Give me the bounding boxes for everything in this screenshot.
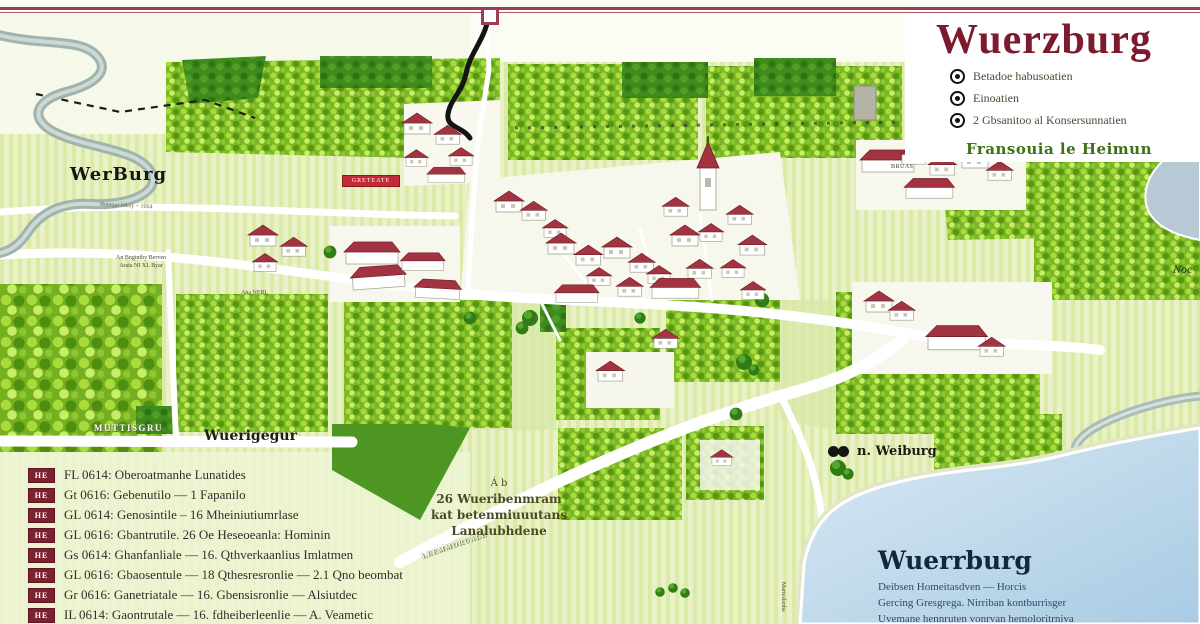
- legend-row: HE IL 0614: Gaontrutale — 16. fdheiberle…: [28, 605, 403, 624]
- legend-row-text: GL 0616: Gbaosentule — 18 Qthesresronlie…: [64, 567, 403, 583]
- road-label-1: Ana NERL: [241, 290, 268, 296]
- legend-row-text: IL 0614: Gaontrutale — 16. fdheiberleenl…: [64, 607, 373, 623]
- target-bullet-icon: [950, 113, 965, 128]
- legend-row-text: Gs 0614: Ghanfanliale — 16. Qthverkaanli…: [64, 547, 353, 563]
- legend-badge: HE: [28, 608, 55, 623]
- center-annotation-line4: Lanalubhdene: [404, 523, 594, 539]
- target-bullet-icon: [950, 69, 965, 84]
- gray-building: [854, 86, 876, 120]
- field-note: An Bngtnthy Berven Arata NI XL Byar: [116, 255, 166, 271]
- legend-key-item: Einoatien: [950, 91, 1192, 106]
- legend-row-text: GL 0616: Gbantrutile. 26 Oe Heseoeanla: …: [64, 527, 330, 543]
- center-annotation-line2: 26 Wueribenmram: [404, 491, 594, 507]
- legend-badge: HE: [28, 568, 55, 583]
- binoculars-icon: [828, 446, 850, 458]
- field-note-line2: Arata NI XL Byar: [116, 263, 166, 271]
- poi-weiburg: n. Weiburg: [828, 444, 937, 459]
- legend-badge: HE: [28, 528, 55, 543]
- legend-row-text: Gt 0616: Gebenutilo — 1 Fapanilo: [64, 487, 246, 503]
- lake-line1: Deibsen Homeitasdven — Horcis: [878, 580, 1074, 596]
- center-annotation-line1: Á b: [404, 477, 594, 491]
- legend-key-item: Betadoe habusoatien: [950, 69, 1192, 84]
- top-border-line: [0, 7, 1200, 10]
- top-border-line-thin: [0, 12, 1200, 13]
- center-annotation-line3: kat betenmiuuutans: [404, 507, 594, 523]
- edge-label: Noc: [1173, 262, 1192, 277]
- legend-row: HE FL 0614: Oberoatmanhe Lunatides: [28, 465, 403, 485]
- legend-key-label: Betadoe habusoatien: [973, 69, 1073, 84]
- center-annotation: Á b 26 Wueribenmram kat betenmiuuutans L…: [404, 477, 594, 539]
- title-block: Wuerzburg Betadoe habusoatien Einoatien …: [936, 18, 1192, 158]
- vertical-map-label: Marteslenba: [780, 582, 786, 612]
- red-banner-label: GRETEATE: [342, 175, 400, 187]
- legend-key-item: 2 Gbsanitoo al Konsersunnatien: [950, 113, 1192, 128]
- legend-row: HE GL 0614: Genosintile – 16 Mheiniutium…: [28, 505, 403, 525]
- legend-badge: HE: [28, 548, 55, 563]
- lake-line2: Gercing Gresgrega. Nirriban kontburrisge…: [878, 596, 1074, 612]
- lake-text-block: Wuerrburg Deibsen Homeitasdven — Horcis …: [878, 546, 1074, 624]
- map-page: Wuerzburg Betadoe habusoatien Einoatien …: [0, 0, 1200, 624]
- legend-row: HE GL 0616: Gbantrutile. 26 Oe Heseoeanl…: [28, 525, 403, 545]
- vineyard-label: Wuerigegur: [204, 428, 297, 444]
- region-label-werburg: WerBurg: [70, 164, 167, 185]
- legend-badge: HE: [28, 508, 55, 523]
- legend-row: HE Gt 0616: Gebenutilo — 1 Fapanilo: [28, 485, 403, 505]
- map-title: Wuerzburg: [936, 18, 1192, 62]
- legend-badge: HE: [28, 468, 55, 483]
- road-band-label: MUTTISGRU: [94, 423, 163, 433]
- poi-weiburg-label: n. Weiburg: [857, 444, 937, 459]
- field-note-line1: An Bngtnthy Berven: [116, 255, 166, 263]
- legend-key-label: 2 Gbsanitoo al Konsersunnatien: [973, 113, 1127, 128]
- lake-line3: Uvemane hennruten vonrvan hemoloritrniva: [878, 612, 1074, 624]
- legend-row-text: FL 0614: Oberoatmanhe Lunatides: [64, 467, 246, 483]
- legend-panel: HE FL 0614: Oberoatmanhe Lunatides HE Gt…: [28, 465, 403, 624]
- legend-row-text: GL 0614: Genosintile – 16 Mheiniutiumrla…: [64, 507, 299, 523]
- legend-badge: HE: [28, 488, 55, 503]
- legend-row: HE Gs 0614: Ghanfanliale — 16. Qthverkaa…: [28, 545, 403, 565]
- legend-key-label: Einoatien: [973, 91, 1019, 106]
- legend-row: HE Gr 0616: Ganetriatale — 16. Gbensisro…: [28, 585, 403, 605]
- building-label: BRUAS: [891, 164, 914, 170]
- top-border-notch: [481, 10, 499, 25]
- legend-row: HE GL 0616: Gbaosentule — 18 Qthesresron…: [28, 565, 403, 585]
- lake-title: Wuerrburg: [878, 546, 1074, 575]
- map-subtitle: Fransouia le Heimun: [966, 140, 1192, 158]
- legend-row-text: Gr 0616: Ganetriatale — 16. Gbensisronli…: [64, 587, 357, 603]
- legend-badge: HE: [28, 588, 55, 603]
- target-bullet-icon: [950, 91, 965, 106]
